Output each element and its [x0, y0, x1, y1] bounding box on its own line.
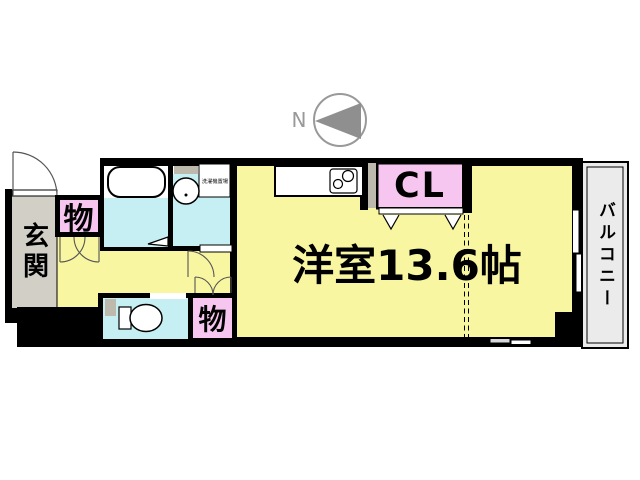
toilet-room — [98, 293, 194, 347]
entrance-door-arc — [13, 152, 57, 196]
wall-closet-right — [463, 158, 472, 213]
balcony-label: バルコニー — [583, 170, 628, 342]
genkan-label: 玄関 — [11, 195, 57, 309]
storage-lower-label: 物 — [188, 295, 237, 341]
closet-side-strip — [368, 163, 377, 208]
main-room-label: 洋室13.6帖 — [237, 233, 577, 291]
toilet-shelf — [105, 299, 116, 316]
counter-strip — [174, 166, 198, 174]
floor-plan: N 玄関 物 物 CL 洋室13.6帖 バルコニー 洗濯機置場 — [0, 0, 640, 480]
closet-opening — [379, 208, 463, 214]
storage-upper-label: 物 — [55, 195, 102, 237]
laundry-space-label: 洗濯機置場 — [201, 176, 230, 186]
closet-label: CL — [377, 163, 463, 208]
stove-icon — [330, 169, 357, 193]
bathtub-icon — [108, 167, 165, 197]
north-compass-icon — [314, 94, 366, 146]
wall-pillar-bottom-right — [555, 312, 582, 347]
sink-icon — [173, 178, 199, 204]
toilet-icon — [119, 305, 162, 332]
kitchen-counter — [275, 166, 363, 196]
bathroom — [100, 162, 173, 251]
toilet-door-opening — [150, 293, 186, 299]
washroom-door-opening — [200, 245, 232, 252]
north-label: N — [288, 106, 310, 134]
wall-corner-block — [17, 307, 102, 347]
